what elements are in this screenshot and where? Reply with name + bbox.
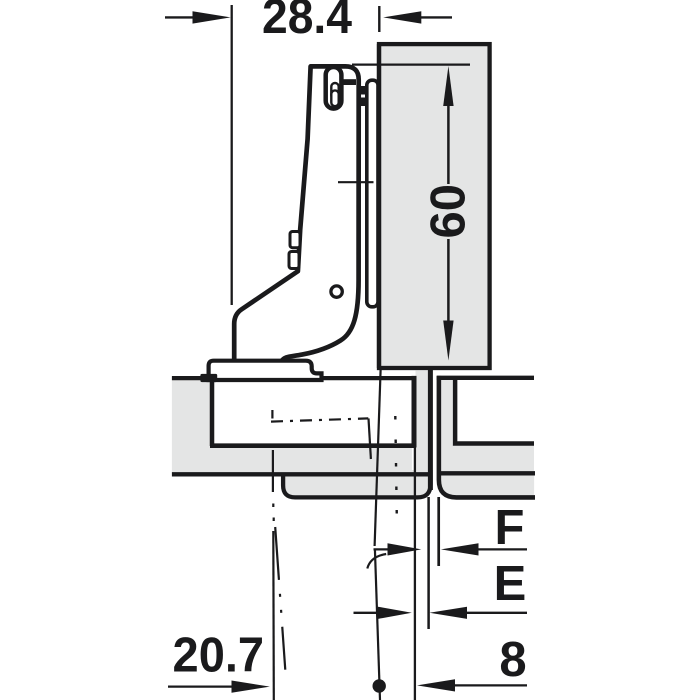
svg-text:28.4: 28.4 xyxy=(262,0,352,44)
svg-text:F: F xyxy=(495,501,525,555)
svg-text:20.7: 20.7 xyxy=(173,628,265,682)
svg-text:E: E xyxy=(494,557,527,611)
svg-text:60: 60 xyxy=(421,184,475,239)
svg-text:8: 8 xyxy=(499,633,526,687)
